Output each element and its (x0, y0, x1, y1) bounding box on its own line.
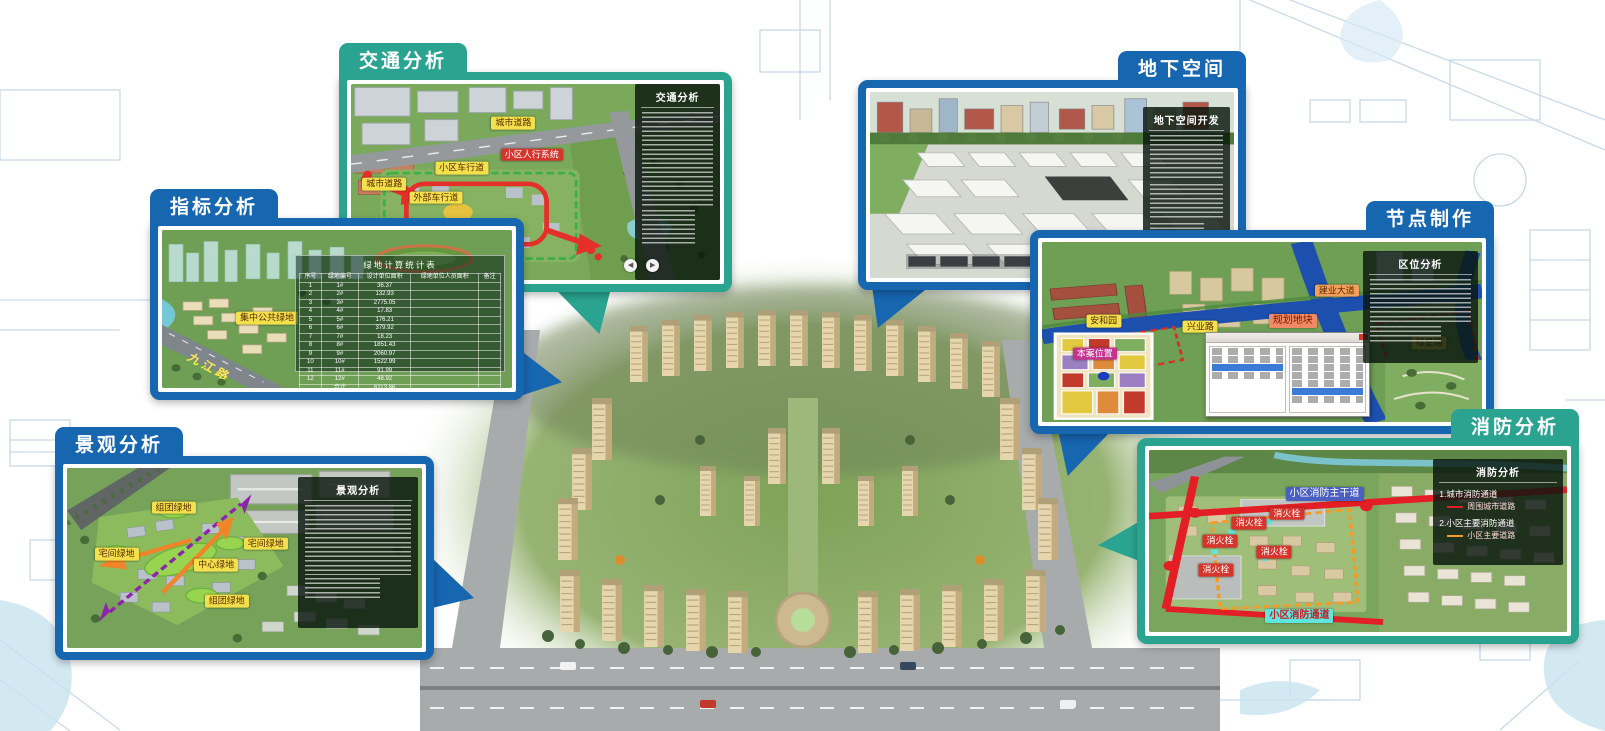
dialog-property-list[interactable] (1289, 346, 1366, 413)
label-house-green-left: 宅间绿地 (95, 548, 139, 561)
panel-fire-analysis: 消防分析 (1137, 438, 1579, 644)
label-community-fire-road: 小区消防通道 (1265, 609, 1333, 623)
label-group-green-top: 组团绿地 (151, 501, 195, 514)
green-table-row: 合计6113.86 (300, 384, 501, 388)
label-city-road-top: 城市道路 (491, 117, 535, 130)
fire-legend-swatch-2: 小区主要道路 (1447, 530, 1557, 541)
landscape-text-sidebar: 景观分析 (298, 477, 419, 628)
green-area-table: 绿地计算统计表 序号绿地编号设计单位面积绿地单位人员面积备注 11#36.372… (295, 255, 505, 372)
indicator-analysis-image: 九江路 集中公共绿地 绿地计算统计表 序号绿地编号设计单位面积绿地单位人员面积备… (162, 230, 512, 388)
tab-indicator-analysis: 指标分析 (150, 189, 278, 226)
label-site-location: 本案位置 (1073, 347, 1117, 360)
traffic-text-sidebar: 交通分析 (635, 84, 720, 280)
green-table-row: 77#18.23 (300, 333, 501, 342)
green-table-row: 22#132.93 (300, 291, 501, 300)
green-table-header-row: 序号绿地编号设计单位面积绿地单位人员面积备注 (300, 274, 501, 283)
tab-landscape-analysis: 景观分析 (55, 427, 183, 464)
dialog-titlebar[interactable] (1206, 333, 1369, 343)
node-text-sidebar: 区位分析 (1363, 251, 1477, 363)
fire-text-sidebar: 消防分析 1.城市消防通道 周围城市道路 2.小区主要消防通道 小区主要道路 (1433, 459, 1563, 565)
green-table-title: 绿地计算统计表 (299, 259, 501, 271)
panel-node-making: 节点制作 (1030, 230, 1494, 434)
label-fire-hydrant: 消火栓 (1257, 546, 1292, 559)
software-dialog-window (1205, 332, 1370, 417)
fire-analysis-image: 小区消防主干道 消火栓 消火栓 消火栓 消火栓 消火栓 小区消防通道 消防分析 … (1149, 450, 1567, 632)
tab-node-making: 节点制作 (1366, 201, 1494, 238)
label-main-fire-road: 小区消防主干道 (1286, 487, 1364, 501)
green-table-row: 66#379.92 (300, 325, 501, 334)
label-central-green: 中心绿地 (194, 559, 238, 572)
traffic-sidebar-title: 交通分析 (641, 89, 714, 108)
node-sidebar-title: 区位分析 (1369, 256, 1471, 275)
label-house-green-right: 宅间绿地 (244, 537, 288, 550)
node-making-image: 安和园 兴业路 规划地块 建业大道 禄星路 本案位置 (1042, 242, 1482, 422)
red-line-swatch (1447, 506, 1463, 508)
green-table-row: 1111#91.99 (300, 367, 501, 376)
label-external-driveway: 外部车行道 (409, 191, 462, 204)
label-jianye-avenue: 建业大道 (1315, 284, 1359, 297)
orange-line-swatch (1447, 535, 1463, 537)
label-planned-plot: 规划地块 (1269, 314, 1317, 328)
tab-fire-analysis: 消防分析 (1451, 409, 1579, 446)
green-table-row: 33#2775.05 (300, 299, 501, 308)
green-table-body: 11#36.3722#132.9333#2775.0544#17.8355#17… (300, 282, 501, 388)
label-group-green-bottom: 组团绿地 (205, 595, 249, 608)
label-anhe-garden: 安和园 (1086, 315, 1121, 328)
green-table-row: 1212#48.92 (300, 376, 501, 385)
fire-legend-item-2: 2.小区主要消防通道 (1439, 517, 1557, 529)
dialog-layer-list[interactable] (1209, 346, 1286, 413)
green-table-row: 99#2060.97 (300, 350, 501, 359)
fire-legend-sub-2: 小区主要道路 (1467, 530, 1515, 541)
panel-indicator-analysis: 指标分析 (150, 218, 524, 400)
presentation-board: 交通分析 (0, 0, 1605, 731)
panel-landscape-analysis: 景观分析 (55, 456, 434, 660)
underground-sidebar-title: 地下空间开发 (1149, 112, 1224, 131)
tab-traffic-analysis: 交通分析 (339, 43, 467, 80)
fire-sidebar-title: 消防分析 (1439, 464, 1557, 483)
green-table-row: 44#17.83 (300, 308, 501, 317)
fire-legend-swatch-1: 周围城市道路 (1447, 501, 1557, 512)
toolbar-button[interactable] (1004, 256, 1032, 267)
label-fire-hydrant: 消火栓 (1198, 564, 1233, 577)
green-table-row: 55#176.21 (300, 316, 501, 325)
fire-legend-item-1: 1.城市消防通道 (1439, 488, 1557, 500)
label-fire-hydrant: 消火栓 (1232, 516, 1267, 529)
toolbar-button[interactable] (908, 256, 936, 267)
label-fire-hydrant: 消火栓 (1269, 507, 1304, 520)
landscape-analysis-image: 组团绿地 宅间绿地 中心绿地 宅间绿地 组团绿地 景观分析 (67, 468, 422, 648)
label-fire-hydrant: 消火栓 (1203, 535, 1238, 548)
green-table-row: 1010#1522.99 (300, 359, 501, 368)
label-pedestrian-system: 小区人行系统 (501, 148, 563, 161)
landscape-sidebar-title: 景观分析 (304, 482, 413, 501)
toolbar-button[interactable] (972, 256, 1000, 267)
fire-legend-sub-1: 周围城市道路 (1467, 501, 1515, 512)
green-table-row: 11#36.37 (300, 282, 501, 291)
tab-underground-space: 地下空间 (1118, 51, 1246, 88)
label-community-driveway: 小区车行道 (435, 162, 488, 175)
toolbar-button[interactable] (940, 256, 968, 267)
label-city-road: 城市道路 (362, 178, 406, 191)
label-central-public-green: 集中公共绿地 (236, 312, 298, 325)
green-table-row: 88#1851.43 (300, 342, 501, 351)
